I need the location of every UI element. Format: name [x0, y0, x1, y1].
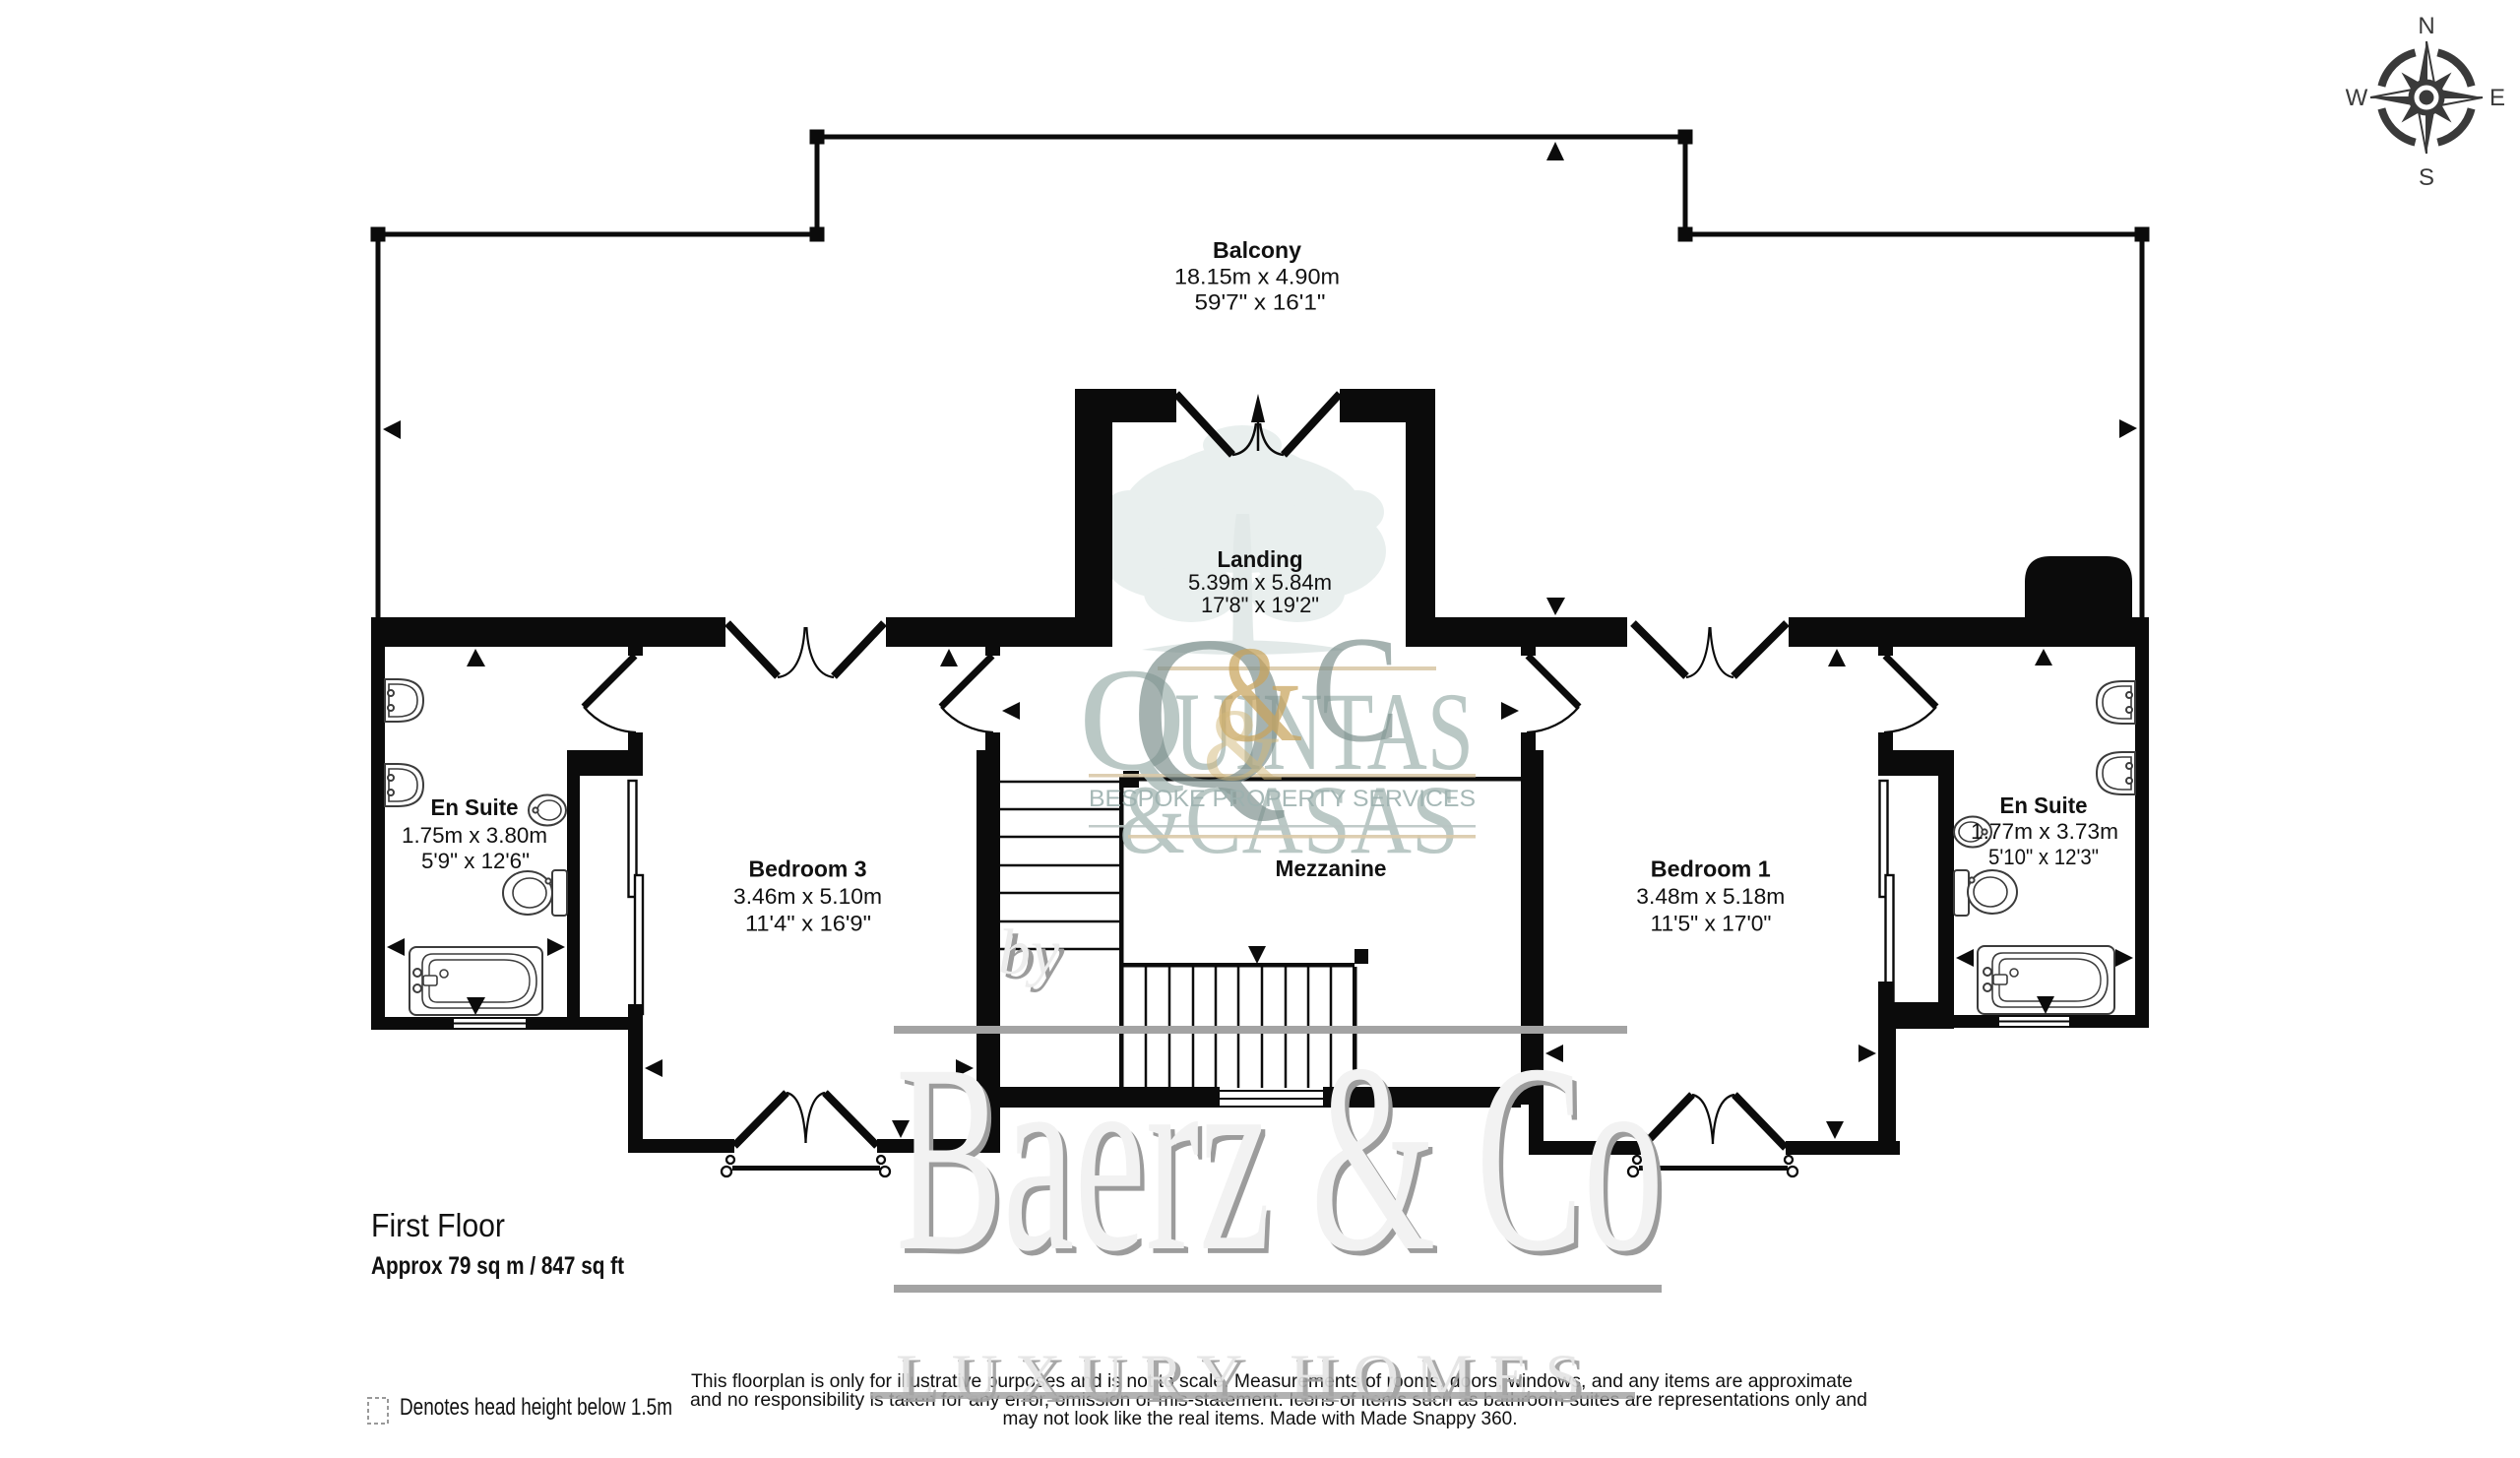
svg-text:En Suite: En Suite	[2000, 792, 2088, 818]
svg-text:Baerz & Co: Baerz & Co	[896, 1008, 1664, 1307]
svg-text:Landing: Landing	[1218, 546, 1303, 572]
svg-text:First Floor: First Floor	[371, 1207, 505, 1243]
svg-text:11'5" x 17'0": 11'5" x 17'0"	[1651, 912, 1772, 936]
svg-text:3.48m x 5.18m: 3.48m x 5.18m	[1636, 884, 1785, 909]
svg-text:5'9" x 12'6": 5'9" x 12'6"	[421, 849, 530, 873]
svg-text:3.46m x 5.10m: 3.46m x 5.10m	[733, 884, 882, 909]
svg-text:Denotes head height below 1.5m: Denotes head height below 1.5m	[400, 1394, 672, 1421]
svg-text:BESPOKE PROPERTY SERVICES: BESPOKE PROPERTY SERVICES	[1089, 786, 1476, 812]
svg-text:E: E	[2489, 85, 2505, 111]
svg-text:18.15m x 4.90m: 18.15m x 4.90m	[1174, 265, 1340, 289]
svg-text:by: by	[998, 917, 1060, 988]
svg-text:S: S	[2419, 164, 2434, 191]
svg-text:Balcony: Balcony	[1213, 237, 1301, 263]
svg-text:W: W	[2346, 85, 2368, 111]
svg-text:Bedroom 1: Bedroom 1	[1651, 856, 1771, 882]
svg-text:C: C	[1311, 604, 1400, 774]
svg-text:LUXURY HOMES: LUXURY HOMES	[896, 1342, 1598, 1413]
svg-text:1.75m x 3.80m: 1.75m x 3.80m	[402, 823, 547, 848]
svg-text:11'4" x 16'9": 11'4" x 16'9"	[745, 912, 871, 936]
svg-text:59'7" x 16'1": 59'7" x 16'1"	[1195, 290, 1326, 315]
svg-text:5'10" x 12'3": 5'10" x 12'3"	[1988, 845, 2099, 869]
svg-text:N: N	[2418, 13, 2434, 39]
svg-text:Bedroom 3: Bedroom 3	[749, 856, 867, 882]
svg-text:En Suite: En Suite	[431, 794, 519, 820]
svg-text:Approx 79 sq m / 847 sq ft: Approx 79 sq m / 847 sq ft	[371, 1252, 625, 1280]
svg-text:1.77m x 3.73m: 1.77m x 3.73m	[1971, 819, 2118, 844]
